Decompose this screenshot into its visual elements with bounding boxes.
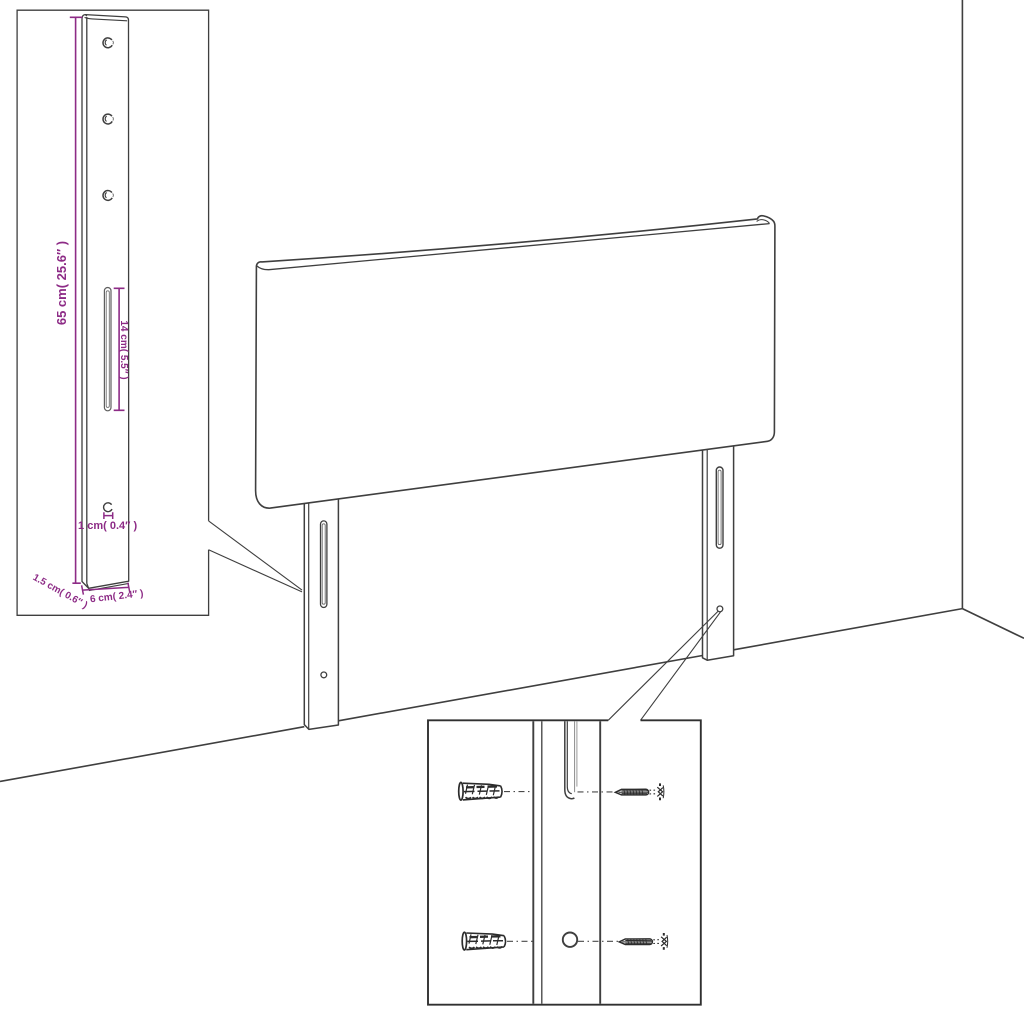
svg-text:14 cm( 5.5″ ): 14 cm( 5.5″ ) bbox=[118, 320, 129, 379]
svg-text:1 cm( 0.4″ ): 1 cm( 0.4″ ) bbox=[78, 520, 137, 532]
svg-text:1.5 cm( 0.6″ ): 1.5 cm( 0.6″ ) bbox=[31, 572, 89, 611]
svg-text:6 cm( 2.4″ ): 6 cm( 2.4″ ) bbox=[89, 588, 144, 605]
svg-text:65 cm( 25.6″ ): 65 cm( 25.6″ ) bbox=[54, 241, 69, 325]
